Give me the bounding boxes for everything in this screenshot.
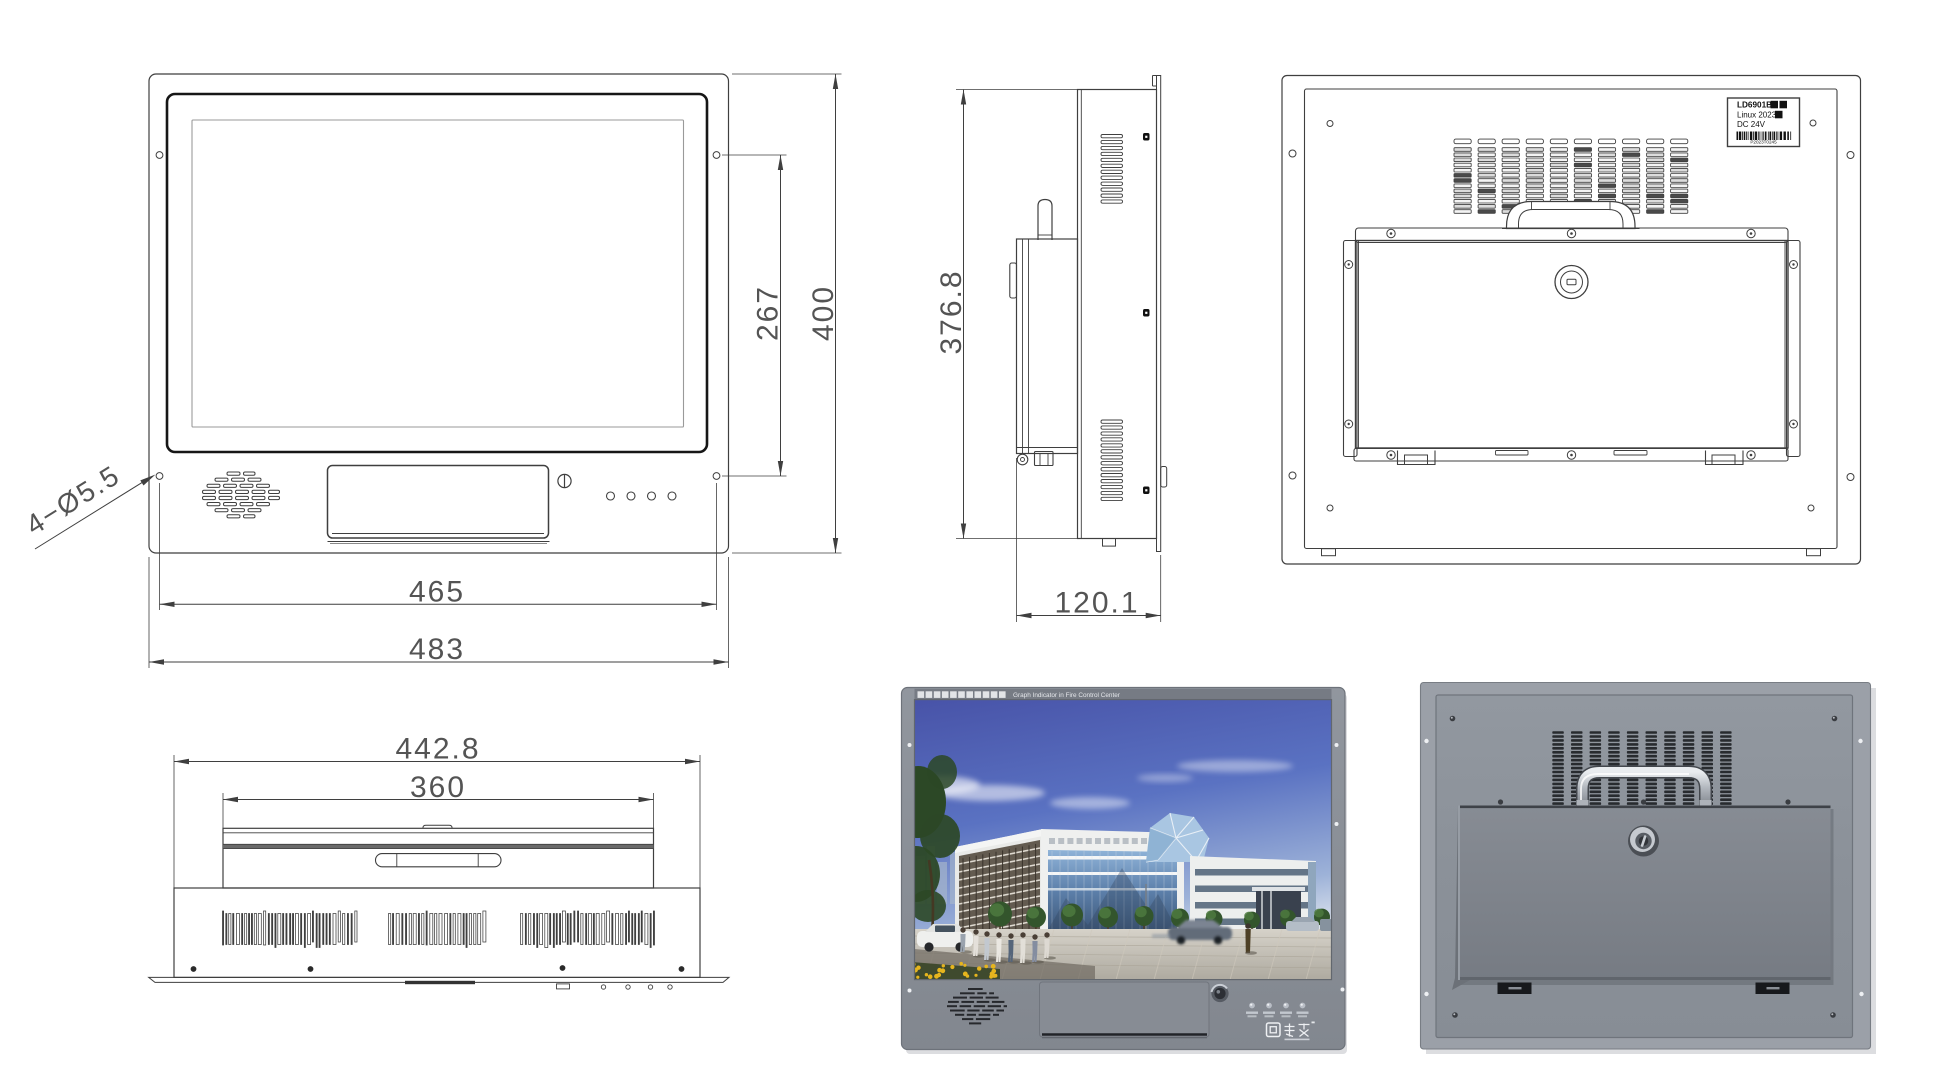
svg-text:120.1: 120.1 (1054, 587, 1139, 620)
svg-text:400: 400 (807, 285, 840, 341)
svg-text:465: 465 (409, 576, 465, 609)
svg-text:LD6901B: LD6901B (1737, 101, 1772, 110)
svg-text:360: 360 (410, 771, 466, 804)
svg-text:Graph Indicator in Fire Contro: Graph Indicator in Fire Control Center (1013, 692, 1121, 699)
svg-text:483: 483 (409, 633, 465, 666)
svg-text:P2023T0245: P2023T0245 (1750, 140, 1777, 145)
svg-text:4−Ø5.5: 4−Ø5.5 (20, 459, 125, 541)
svg-text:267: 267 (752, 285, 785, 341)
svg-text:376.8: 376.8 (935, 269, 968, 354)
svg-text:442.8: 442.8 (395, 733, 480, 766)
svg-text:Linux 2023: Linux 2023 (1737, 111, 1777, 120)
svg-text:DC 24V: DC 24V (1737, 120, 1766, 129)
